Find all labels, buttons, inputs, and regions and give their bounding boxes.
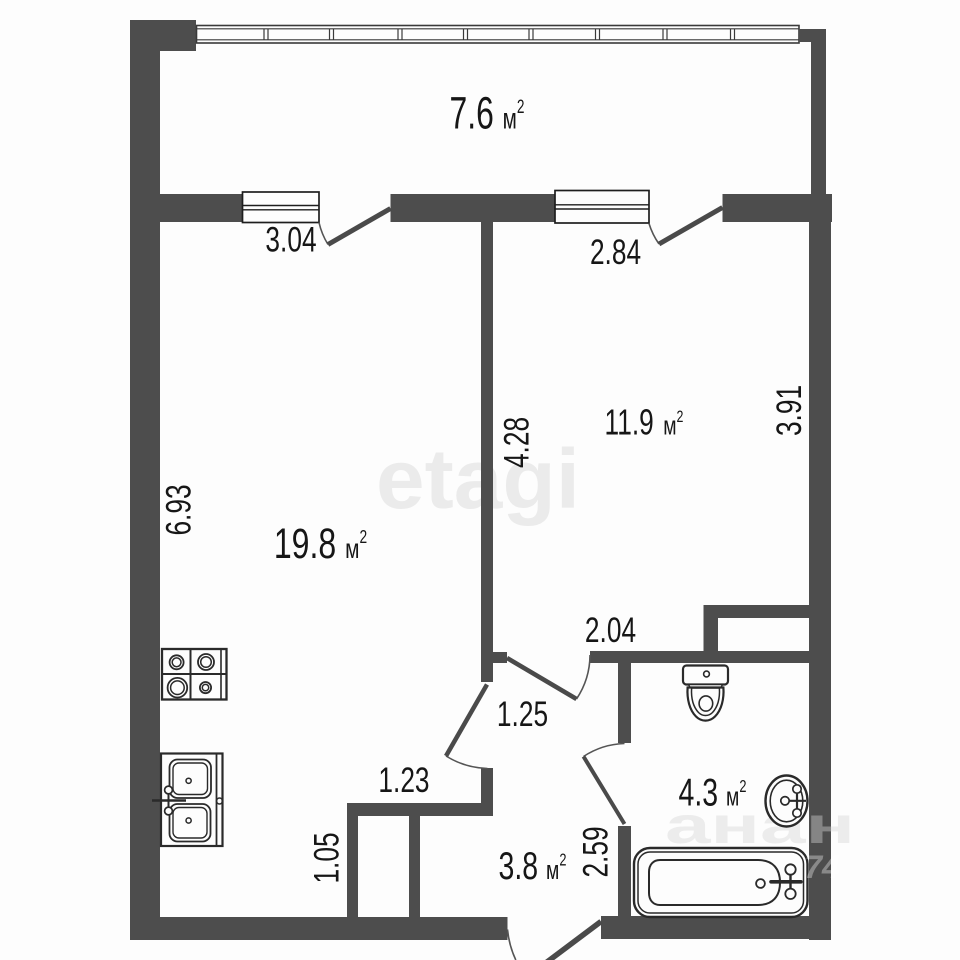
svg-text:4.28: 4.28 — [497, 417, 537, 468]
svg-text:74: 74 — [804, 849, 840, 885]
svg-text:3.91: 3.91 — [769, 385, 809, 436]
svg-text:2.04: 2.04 — [585, 610, 636, 650]
svg-text:2.84: 2.84 — [590, 232, 641, 272]
svg-text:2.59: 2.59 — [576, 826, 616, 877]
svg-text:6.93: 6.93 — [159, 484, 199, 535]
svg-text:etagi: etagi — [376, 432, 580, 526]
svg-text:3.04: 3.04 — [265, 220, 316, 260]
svg-text:1.25: 1.25 — [497, 694, 548, 734]
svg-text:1.05: 1.05 — [307, 832, 347, 883]
svg-text:1.23: 1.23 — [378, 760, 429, 800]
